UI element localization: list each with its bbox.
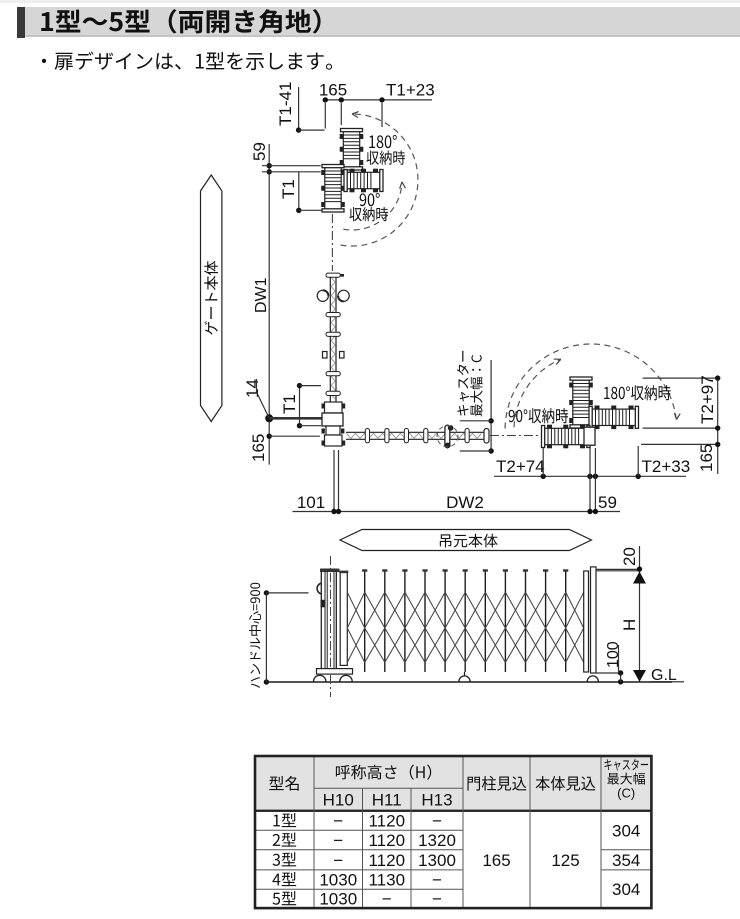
svg-text:(C): (C): [617, 786, 635, 801]
svg-text:125: 125: [551, 851, 579, 870]
svg-text:DW2: DW2: [446, 493, 484, 512]
svg-text:−: −: [333, 812, 343, 831]
svg-text:20: 20: [620, 547, 639, 566]
svg-text:354: 354: [612, 851, 640, 870]
svg-text:59: 59: [250, 142, 269, 161]
svg-text:T2+97: T2+97: [698, 375, 717, 424]
svg-text:H: H: [620, 619, 639, 631]
svg-text:304: 304: [612, 821, 640, 840]
svg-text:1320: 1320: [418, 831, 456, 850]
svg-text:T1-41: T1-41: [276, 82, 295, 126]
svg-text:165: 165: [319, 81, 347, 100]
svg-text:H11: H11: [372, 791, 402, 810]
svg-text:1300: 1300: [418, 851, 456, 870]
svg-text:T2+33: T2+33: [642, 457, 691, 476]
svg-text:−: −: [432, 812, 442, 831]
svg-text:DW1: DW1: [253, 277, 270, 313]
svg-text:59: 59: [598, 493, 617, 512]
svg-text:T1: T1: [280, 394, 299, 414]
svg-text:T2+74: T2+74: [496, 457, 545, 476]
svg-text:101: 101: [297, 493, 325, 512]
svg-text:H10: H10: [323, 791, 354, 810]
svg-text:1030: 1030: [319, 871, 357, 890]
svg-text:1120: 1120: [368, 851, 405, 870]
svg-text:H13: H13: [421, 791, 452, 810]
svg-text:165: 165: [249, 434, 268, 462]
svg-text:−: −: [382, 890, 392, 909]
svg-text:1120: 1120: [368, 812, 405, 831]
svg-text:14: 14: [243, 379, 262, 398]
svg-text:−: −: [333, 851, 343, 870]
svg-text:165: 165: [697, 444, 716, 472]
svg-text:1120: 1120: [368, 831, 405, 850]
svg-text:165: 165: [482, 851, 510, 870]
svg-text:100: 100: [605, 641, 622, 668]
svg-text:1030: 1030: [319, 890, 357, 909]
svg-text:304: 304: [612, 880, 640, 899]
svg-text:−: −: [432, 890, 442, 909]
svg-text:−: −: [432, 871, 442, 890]
svg-text:−: −: [333, 831, 343, 850]
svg-text:1130: 1130: [368, 871, 405, 890]
svg-text:T1+23: T1+23: [386, 81, 435, 100]
svg-text:T1: T1: [279, 179, 298, 199]
